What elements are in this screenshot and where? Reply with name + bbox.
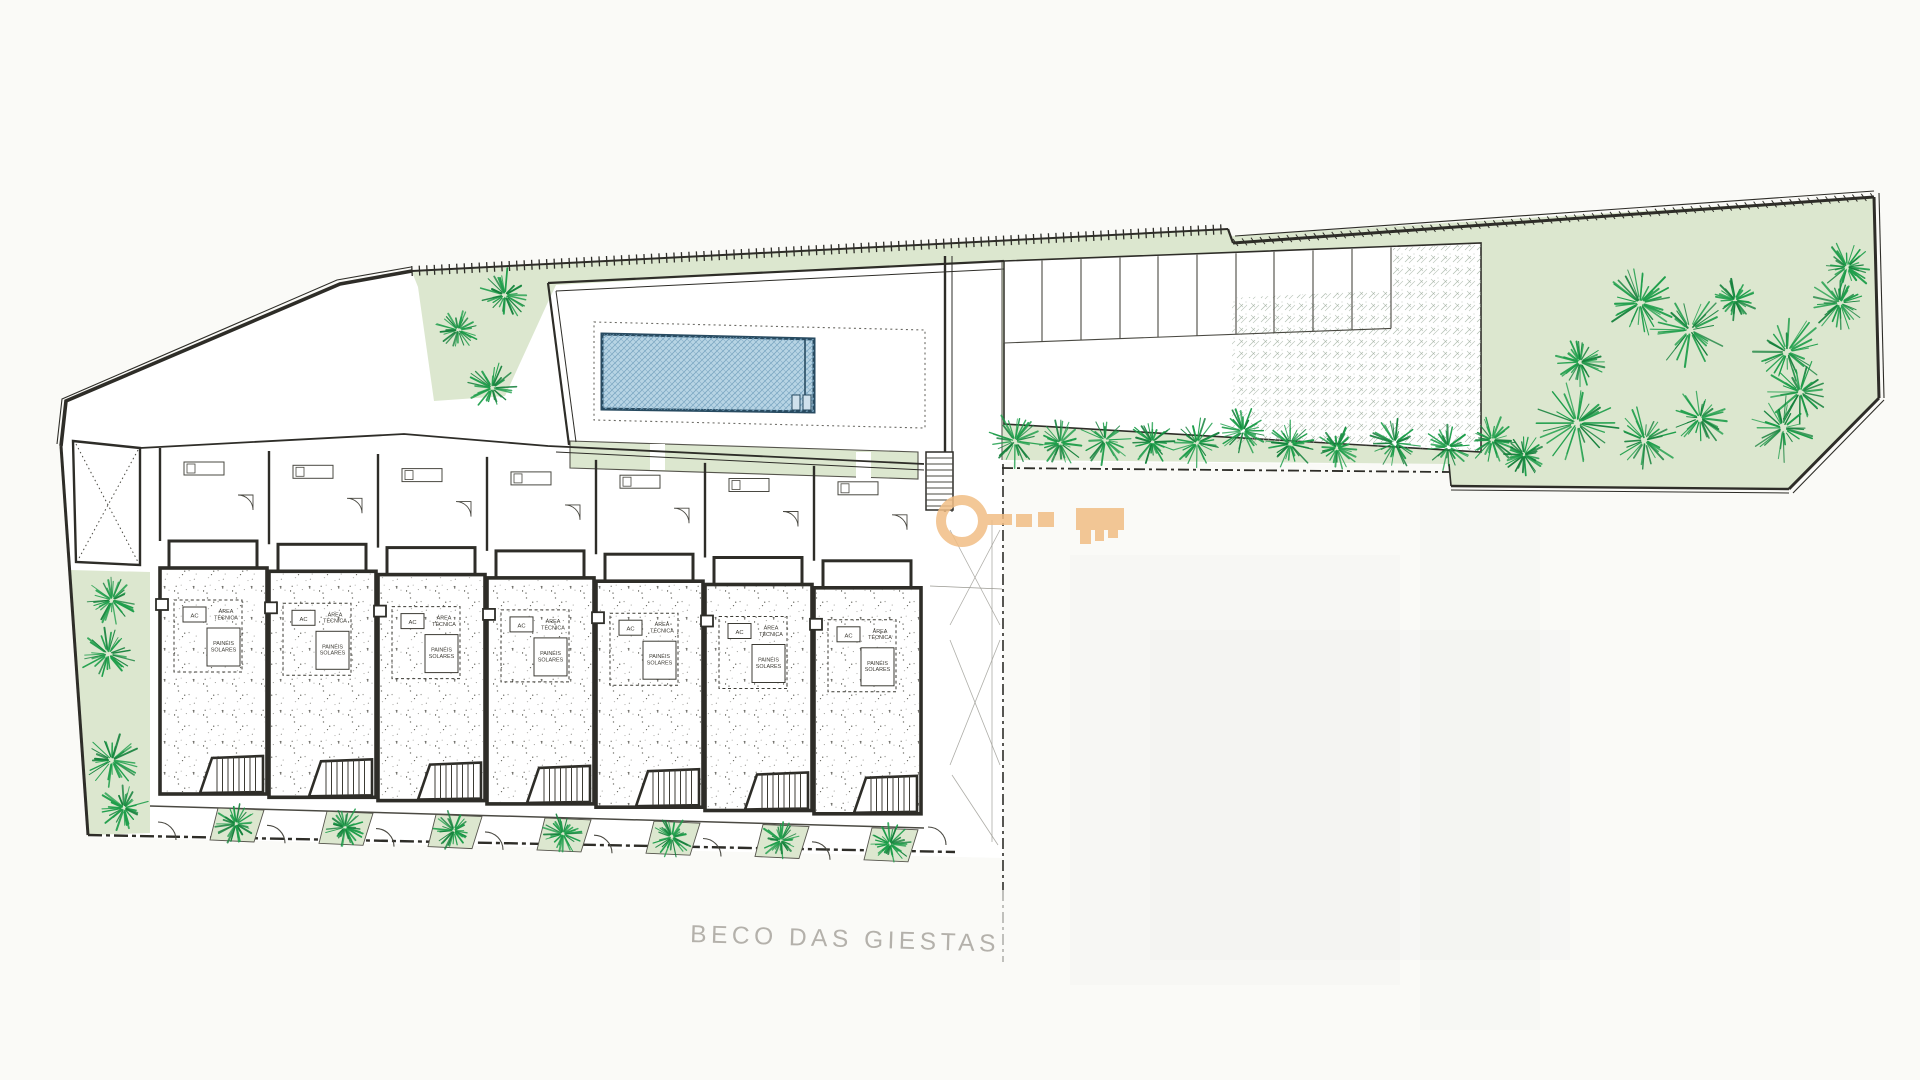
- pool-steps: [803, 395, 811, 410]
- ac-label: AC: [735, 630, 743, 636]
- scan-artifacts: [1070, 490, 1570, 1030]
- pool-steps: [792, 395, 800, 410]
- ac-label: AC: [517, 623, 525, 629]
- street-name-label: BECO DAS GIESTAS: [690, 921, 1001, 958]
- paineis-solares-label: PAINÉISSOLARES: [538, 650, 564, 663]
- paineis-solares-label: PAINÉISSOLARES: [756, 657, 782, 670]
- stairs-icon: [309, 759, 372, 796]
- stairs-icon: [745, 773, 808, 810]
- property-line: [1002, 468, 1449, 472]
- ac-label: AC: [190, 614, 198, 620]
- ac-label: AC: [299, 617, 307, 623]
- stairs-icon: [527, 766, 590, 803]
- site-plan-page: ACÁREATÉCNICAPAINÉISSOLARESACÁREATÉCNICA…: [0, 0, 1920, 1080]
- balcony: [496, 551, 584, 578]
- paineis-solares-label: PAINÉISSOLARES: [320, 643, 346, 656]
- site-plan-drawing: ACÁREATÉCNICAPAINÉISSOLARESACÁREATÉCNICA…: [0, 0, 1920, 1080]
- paineis-solares-label: PAINÉISSOLARES: [211, 640, 237, 653]
- stairs-icon: [418, 763, 481, 800]
- balcony: [278, 544, 366, 571]
- balcony: [387, 548, 475, 575]
- balcony: [714, 558, 802, 585]
- stairs-icon: [636, 769, 699, 806]
- balcony: [823, 561, 911, 588]
- ramp-area: [73, 441, 140, 565]
- ac-label: AC: [626, 627, 634, 633]
- paineis-solares-label: PAINÉISSOLARES: [647, 653, 673, 666]
- paineis-solares-label: PAINÉISSOLARES: [865, 660, 891, 673]
- balcony: [169, 541, 257, 568]
- paineis-solares-label: PAINÉISSOLARES: [429, 647, 455, 660]
- ac-label: AC: [408, 620, 416, 626]
- ac-label: AC: [844, 633, 852, 639]
- stairs-icon: [200, 756, 263, 793]
- balcony: [605, 554, 693, 581]
- stairs-icon: [854, 776, 917, 813]
- plan-geometry: ACÁREATÉCNICAPAINÉISSOLARESACÁREATÉCNICA…: [57, 191, 1884, 1030]
- swimming-pool: [602, 334, 814, 412]
